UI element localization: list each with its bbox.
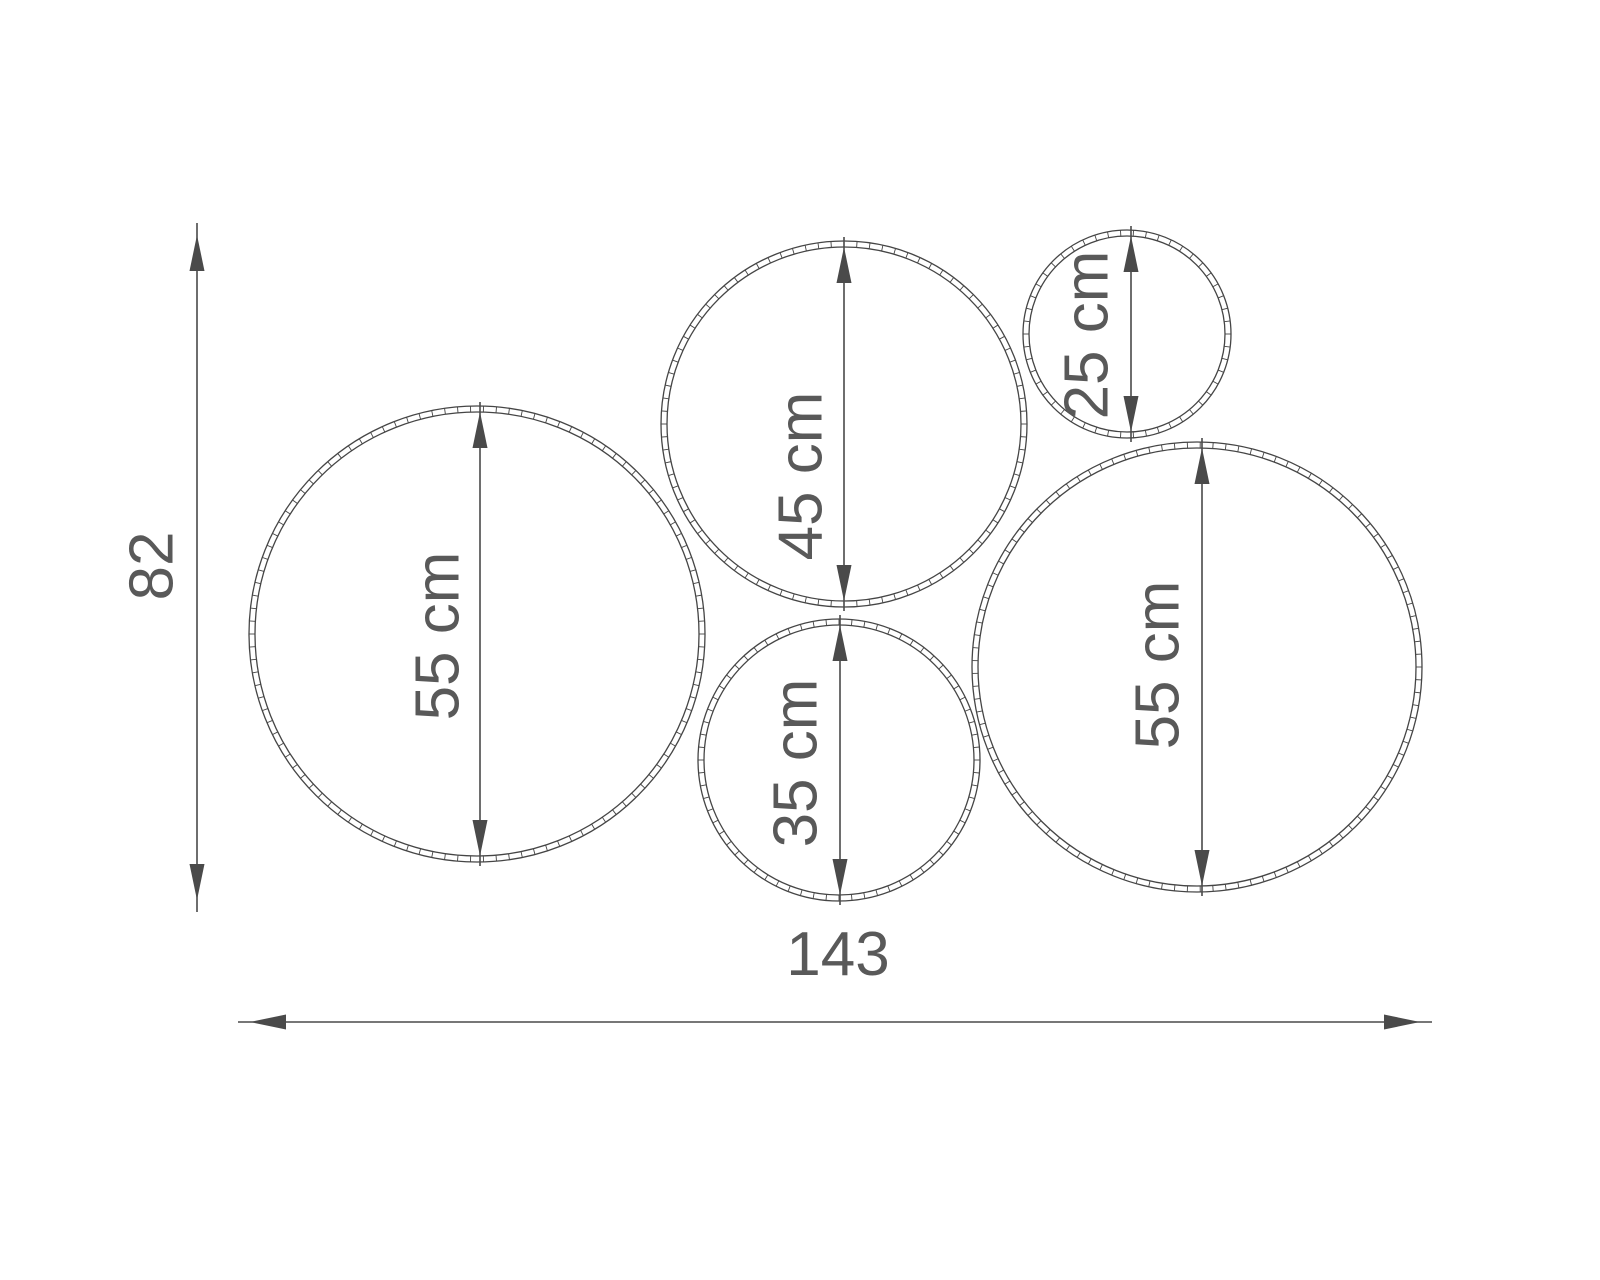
hoop-diameter-label-55-right: 55 cm xyxy=(1124,581,1193,750)
diameter-arrow xyxy=(837,237,852,611)
overall-height-label: 82 xyxy=(118,532,187,601)
diagram-svg: 55 cm 45 cm 25 cm 35 cm 55 cm 82 143 xyxy=(0,0,1600,1280)
diameter-arrow xyxy=(833,615,848,905)
overall-height-dimension xyxy=(190,223,205,912)
overall-width-label: 143 xyxy=(786,920,889,989)
hoop-55-right xyxy=(972,438,1422,896)
overall-width-dimension xyxy=(238,1015,1432,1030)
hoop-35-bottom xyxy=(698,615,980,905)
hoop-diameter-label-25-small: 25 cm xyxy=(1053,251,1122,420)
diameter-arrow xyxy=(1195,438,1210,896)
diameter-arrow xyxy=(1124,226,1139,442)
hoop-diameter-label-35-bottom: 35 cm xyxy=(762,679,831,848)
diameter-arrow xyxy=(473,402,488,866)
hoop-55-left xyxy=(249,402,705,866)
dimension-diagram: 55 cm 45 cm 25 cm 35 cm 55 cm 82 143 xyxy=(0,0,1600,1280)
dimensions-layer xyxy=(190,223,1433,1030)
hoop-diameter-label-45-top: 45 cm xyxy=(767,392,836,561)
labels-layer: 55 cm 45 cm 25 cm 35 cm 55 cm 82 143 xyxy=(118,251,1193,989)
hoop-45-top xyxy=(661,237,1027,611)
hoop-diameter-label-55-left: 55 cm xyxy=(404,552,473,721)
